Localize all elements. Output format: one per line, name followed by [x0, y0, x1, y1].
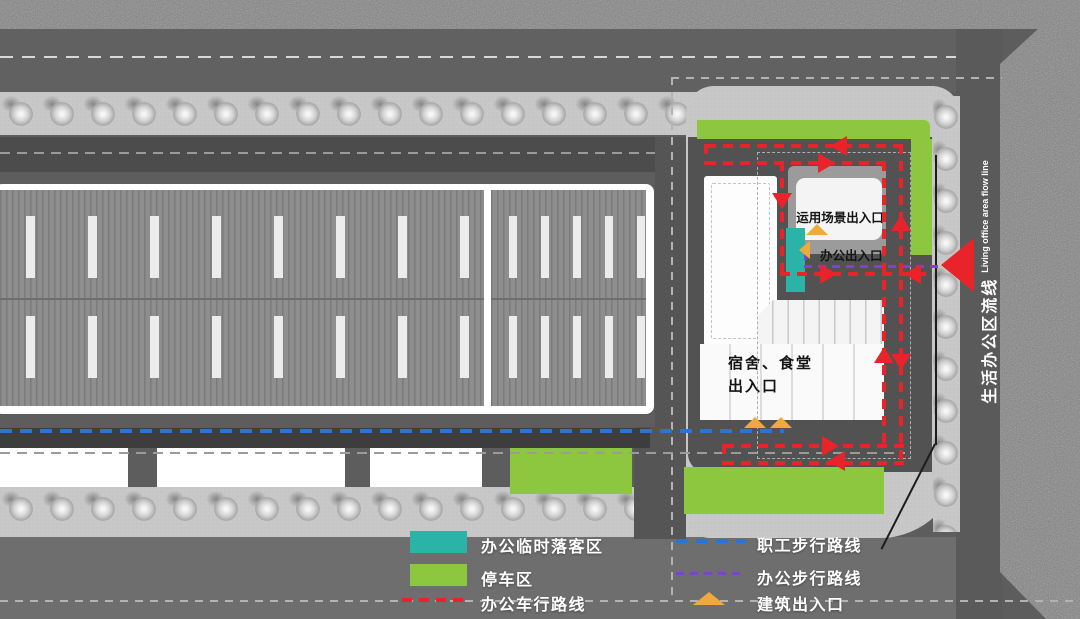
factory-building	[0, 184, 654, 414]
legend-swatch-dropoff	[410, 531, 467, 553]
street-flow-label: 生活办公区流线 Living office area flow line	[976, 202, 1016, 362]
vehicle-route-h3	[724, 444, 904, 448]
entrance-marker-dorm-1	[744, 417, 766, 428]
route-arrow-south-2	[772, 193, 792, 209]
legend-swatch-entrance	[693, 592, 725, 605]
vehicle-route-h1	[706, 144, 900, 148]
parking-strip-north	[697, 120, 930, 139]
legend-swatch-parking	[410, 564, 467, 586]
site-plan-canvas: 运用场景出入口 办公出入口 宿舍、食堂 出入口	[0, 0, 1080, 619]
parking-area-west	[510, 448, 632, 494]
vehicle-route-bottom-cap	[722, 444, 726, 465]
entrance-marker-dropoff	[799, 241, 810, 259]
entrance-marker-office	[806, 224, 828, 235]
factory-roof-west	[0, 190, 484, 406]
parking-strip-east	[911, 139, 932, 255]
north-road	[0, 29, 1002, 92]
north-road-centerline	[0, 56, 1002, 58]
worker-route-line	[0, 429, 784, 433]
vehicle-route-h4	[724, 461, 904, 465]
route-arrow-west-3	[904, 264, 921, 284]
route-arrow-north-2	[891, 215, 911, 231]
parking-area-southeast	[684, 467, 884, 514]
tree-row-east	[933, 96, 960, 532]
route-arrow-west-2	[828, 451, 845, 471]
entrance-marker-dorm-2	[770, 417, 792, 428]
boundary-wall	[935, 155, 937, 445]
factory-roof-east	[491, 190, 646, 406]
legend-swatch-vehicle-route	[402, 598, 470, 602]
route-arrow-south-1	[891, 354, 911, 370]
vehicle-route-h2	[706, 161, 886, 165]
legend-label-office-walk-route: 办公步行路线	[757, 565, 862, 589]
vehicle-route-left-cap	[704, 144, 708, 165]
legend-label-vehicle-route: 办公车行路线	[481, 591, 586, 615]
site-boundary-vertical	[671, 77, 673, 601]
vehicle-route-v3	[780, 161, 784, 276]
site-boundary-top	[671, 77, 1002, 79]
site-entry-arrow	[941, 238, 974, 292]
legend-label-entrance: 建筑出入口	[757, 591, 845, 615]
street-flow-label-en: Living office area flow line	[976, 160, 990, 273]
street-flow-label-cn: 生活办公区流线	[976, 278, 1000, 404]
vehicle-route-v2	[899, 144, 903, 466]
legend-label-worker-route: 职工步行路线	[757, 532, 862, 556]
legend-label-parking: 停车区	[481, 566, 534, 590]
vehicle-route-v1	[882, 161, 886, 448]
legend-swatch-worker-route	[676, 539, 746, 543]
legend-swatch-office-walk-route	[676, 572, 746, 575]
route-arrow-east	[818, 153, 835, 173]
offsite-ground-top	[0, 0, 1080, 29]
legend-label-dropoff: 办公临时落客区	[481, 533, 604, 557]
route-arrow-east-3	[820, 264, 837, 284]
